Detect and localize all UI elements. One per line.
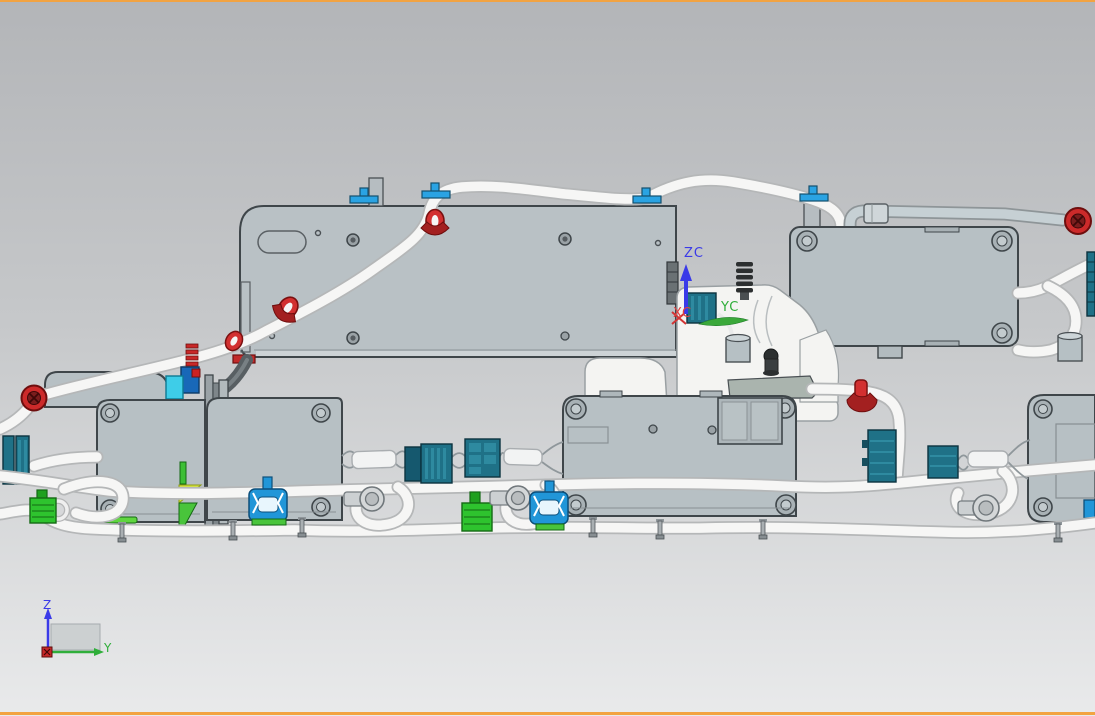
teal-connector-mid-2[interactable]	[465, 439, 500, 477]
view-triad-y-label: Y	[104, 641, 112, 655]
red-grommet-left[interactable]	[22, 386, 47, 411]
view-triad	[42, 608, 104, 657]
module-center[interactable]	[563, 391, 796, 516]
black-knob[interactable]	[763, 349, 779, 376]
viewport-border-bottom	[0, 712, 1095, 715]
teal-connector-mid-1[interactable]	[405, 444, 452, 483]
viewport-border-top	[0, 0, 1095, 2]
mounting-panel[interactable]	[240, 206, 678, 357]
right-edge-tubes[interactable]	[1018, 262, 1095, 352]
teal-connector-right-1[interactable]	[862, 430, 896, 482]
view-triad-z-label: Z	[43, 598, 52, 612]
gray-cylinder-standoff-right[interactable]	[1058, 333, 1082, 362]
red-grommet-right[interactable]	[1065, 208, 1091, 234]
teal-connector-right-2[interactable]	[928, 446, 958, 478]
right-edge-teal-connector[interactable]	[1087, 252, 1095, 316]
wcs-yc-label: YC	[721, 300, 739, 315]
wcs-xc-label: XC	[673, 306, 692, 321]
dark-blue-connector[interactable]	[181, 367, 200, 393]
wcs-zc-label: ZC	[684, 246, 704, 261]
cad-graphics-window[interactable]: ZC YC XC Z Y	[0, 0, 1095, 716]
module-bottom-right[interactable]	[1028, 395, 1095, 522]
gray-cylinder-standoff-center[interactable]	[726, 335, 750, 363]
green-connector-mid[interactable]	[462, 492, 492, 531]
assembly-3d-scene[interactable]	[0, 0, 1095, 716]
